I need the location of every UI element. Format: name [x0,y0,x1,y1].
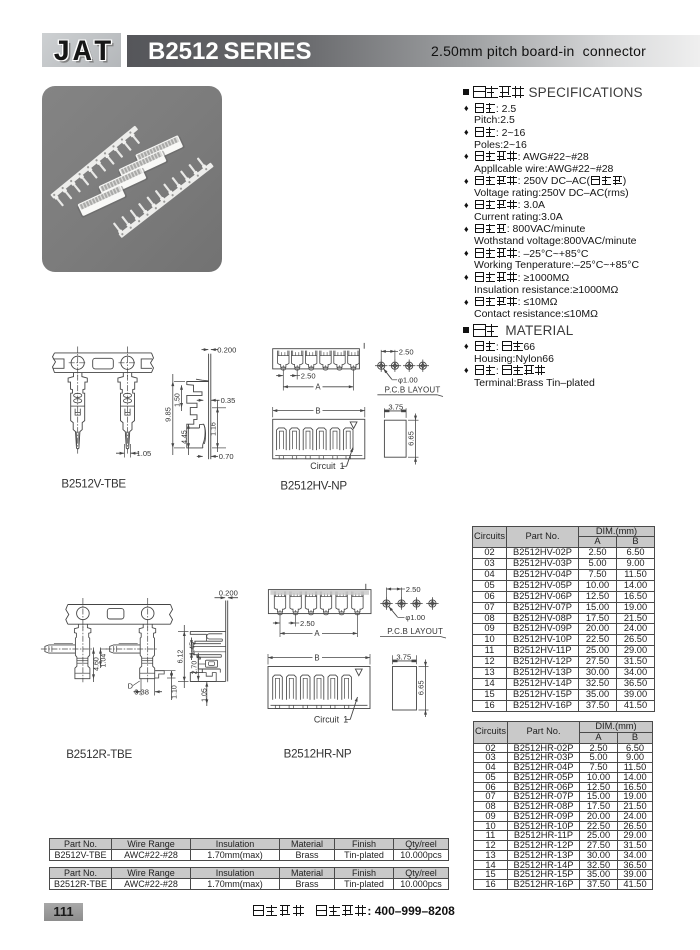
svg-text:φ1.00: φ1.00 [398,375,418,384]
svg-text:1.45: 1.45 [189,642,196,656]
svg-text:0.38: 0.38 [134,688,149,697]
svg-text:2.50: 2.50 [301,371,316,380]
svg-text:A: A [315,383,321,392]
svg-text:0.35: 0.35 [221,396,236,405]
svg-text:4.45: 4.45 [182,430,189,444]
svg-text:P.C.B LAYOUT: P.C.B LAYOUT [385,386,441,395]
svg-text:9.85: 9.85 [164,407,173,422]
svg-text:Circuit 1: Circuit 1 [310,461,344,471]
svg-text:1.16: 1.16 [211,422,218,436]
svg-text:3.75: 3.75 [396,652,411,661]
svg-text:6.65: 6.65 [416,680,425,695]
svg-text:2.50: 2.50 [300,619,315,628]
svg-text:2.70: 2.70 [192,661,199,675]
svg-text:Circuit 1: Circuit 1 [314,714,348,724]
svg-text:P.C.B LAYOUT: P.C.B LAYOUT [387,627,443,636]
svg-text:B2512HR-NP: B2512HR-NP [284,747,352,760]
svg-text:1.50: 1.50 [175,393,182,407]
svg-text:1.05: 1.05 [201,688,208,702]
svg-text:B2512R-TBE: B2512R-TBE [66,748,132,761]
svg-text:B2512V-TBE: B2512V-TBE [61,478,126,491]
svg-text:1.10: 1.10 [171,685,178,699]
svg-text:2.50: 2.50 [406,585,421,594]
svg-text:D: D [128,682,134,691]
svg-text:B: B [314,653,319,662]
svg-text:0.70: 0.70 [219,452,234,461]
svg-text:4.60: 4.60 [94,657,101,671]
svg-text:2.50: 2.50 [399,347,414,356]
svg-text:B2512HV-NP: B2512HV-NP [280,479,347,492]
svg-text:6.65: 6.65 [406,431,415,446]
svg-text:0.200: 0.200 [219,588,238,597]
svg-text:1.04: 1.04 [101,654,108,668]
svg-text:φ1.00: φ1.00 [405,613,425,622]
svg-text:B: B [315,406,320,415]
svg-text:1.05: 1.05 [137,449,152,458]
svg-text:A: A [314,629,320,638]
svg-text:0.200: 0.200 [217,345,236,354]
svg-text:6.12: 6.12 [177,650,184,664]
svg-text:3.75: 3.75 [388,402,403,411]
